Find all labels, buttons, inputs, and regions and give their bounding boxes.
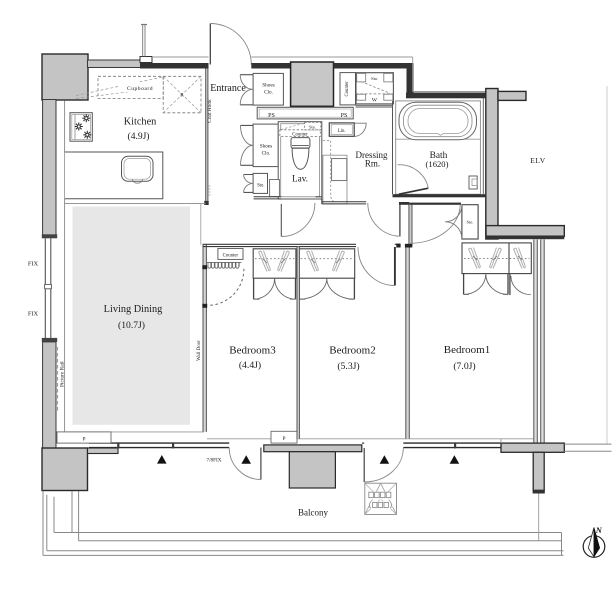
svg-text:Counter: Counter [292, 133, 308, 138]
svg-text:P: P [83, 436, 86, 442]
svg-text:Lav.: Lav. [292, 174, 308, 184]
svg-text:Entrance: Entrance [210, 83, 246, 94]
svg-text:P: P [283, 436, 286, 442]
svg-text:(4.9J): (4.9J) [128, 131, 150, 142]
svg-text:Balcony: Balcony [298, 508, 328, 518]
svg-text:ELV: ELV [530, 156, 545, 165]
svg-text:Coat Hook: Coat Hook [207, 99, 213, 123]
svg-text:N: N [595, 525, 603, 535]
svg-text:(7.0J): (7.0J) [453, 361, 475, 372]
svg-text:W: W [372, 97, 378, 103]
svg-text:Lin.: Lin. [338, 129, 346, 134]
svg-text:FIX: FIX [28, 261, 39, 268]
svg-text:Bedroom1: Bedroom1 [444, 344, 490, 356]
svg-text:Clo.: Clo. [262, 151, 271, 157]
svg-text:Cupboard: Cupboard [127, 86, 153, 92]
svg-text:(4.4J): (4.4J) [239, 360, 261, 371]
svg-text:Bedroom3: Bedroom3 [229, 345, 276, 357]
svg-text:Counter: Counter [345, 81, 350, 97]
svg-text:(5.3J): (5.3J) [337, 361, 359, 372]
svg-text:Rm.: Rm. [365, 159, 380, 169]
svg-text:Living Dining: Living Dining [104, 304, 163, 315]
svg-text:Clo.: Clo. [264, 90, 273, 96]
svg-text:Sto.: Sto. [467, 219, 474, 224]
svg-text:R: R [180, 93, 184, 99]
svg-text:PS: PS [341, 113, 348, 119]
svg-text:(1620): (1620) [426, 159, 449, 169]
svg-text:Wall Door: Wall Door [197, 340, 202, 361]
svg-text:Sto.: Sto. [371, 76, 378, 81]
svg-text:Kitchen: Kitchen [124, 117, 157, 128]
svg-text:Shoes: Shoes [260, 144, 272, 150]
svg-text:PS: PS [268, 113, 275, 119]
svg-text:Counter: Counter [223, 254, 239, 259]
svg-text:FIX: FIX [28, 311, 39, 318]
svg-text:Shoes: Shoes [262, 83, 274, 89]
svg-text:Bedroom2: Bedroom2 [329, 345, 375, 357]
svg-text:7/8FIX: 7/8FIX [207, 457, 222, 463]
svg-text:Sto.: Sto. [309, 124, 316, 129]
svg-text:Sto.: Sto. [257, 184, 264, 189]
svg-text:(10.7J): (10.7J) [118, 320, 145, 331]
svg-text:Picture Rail: Picture Rail [59, 361, 65, 387]
